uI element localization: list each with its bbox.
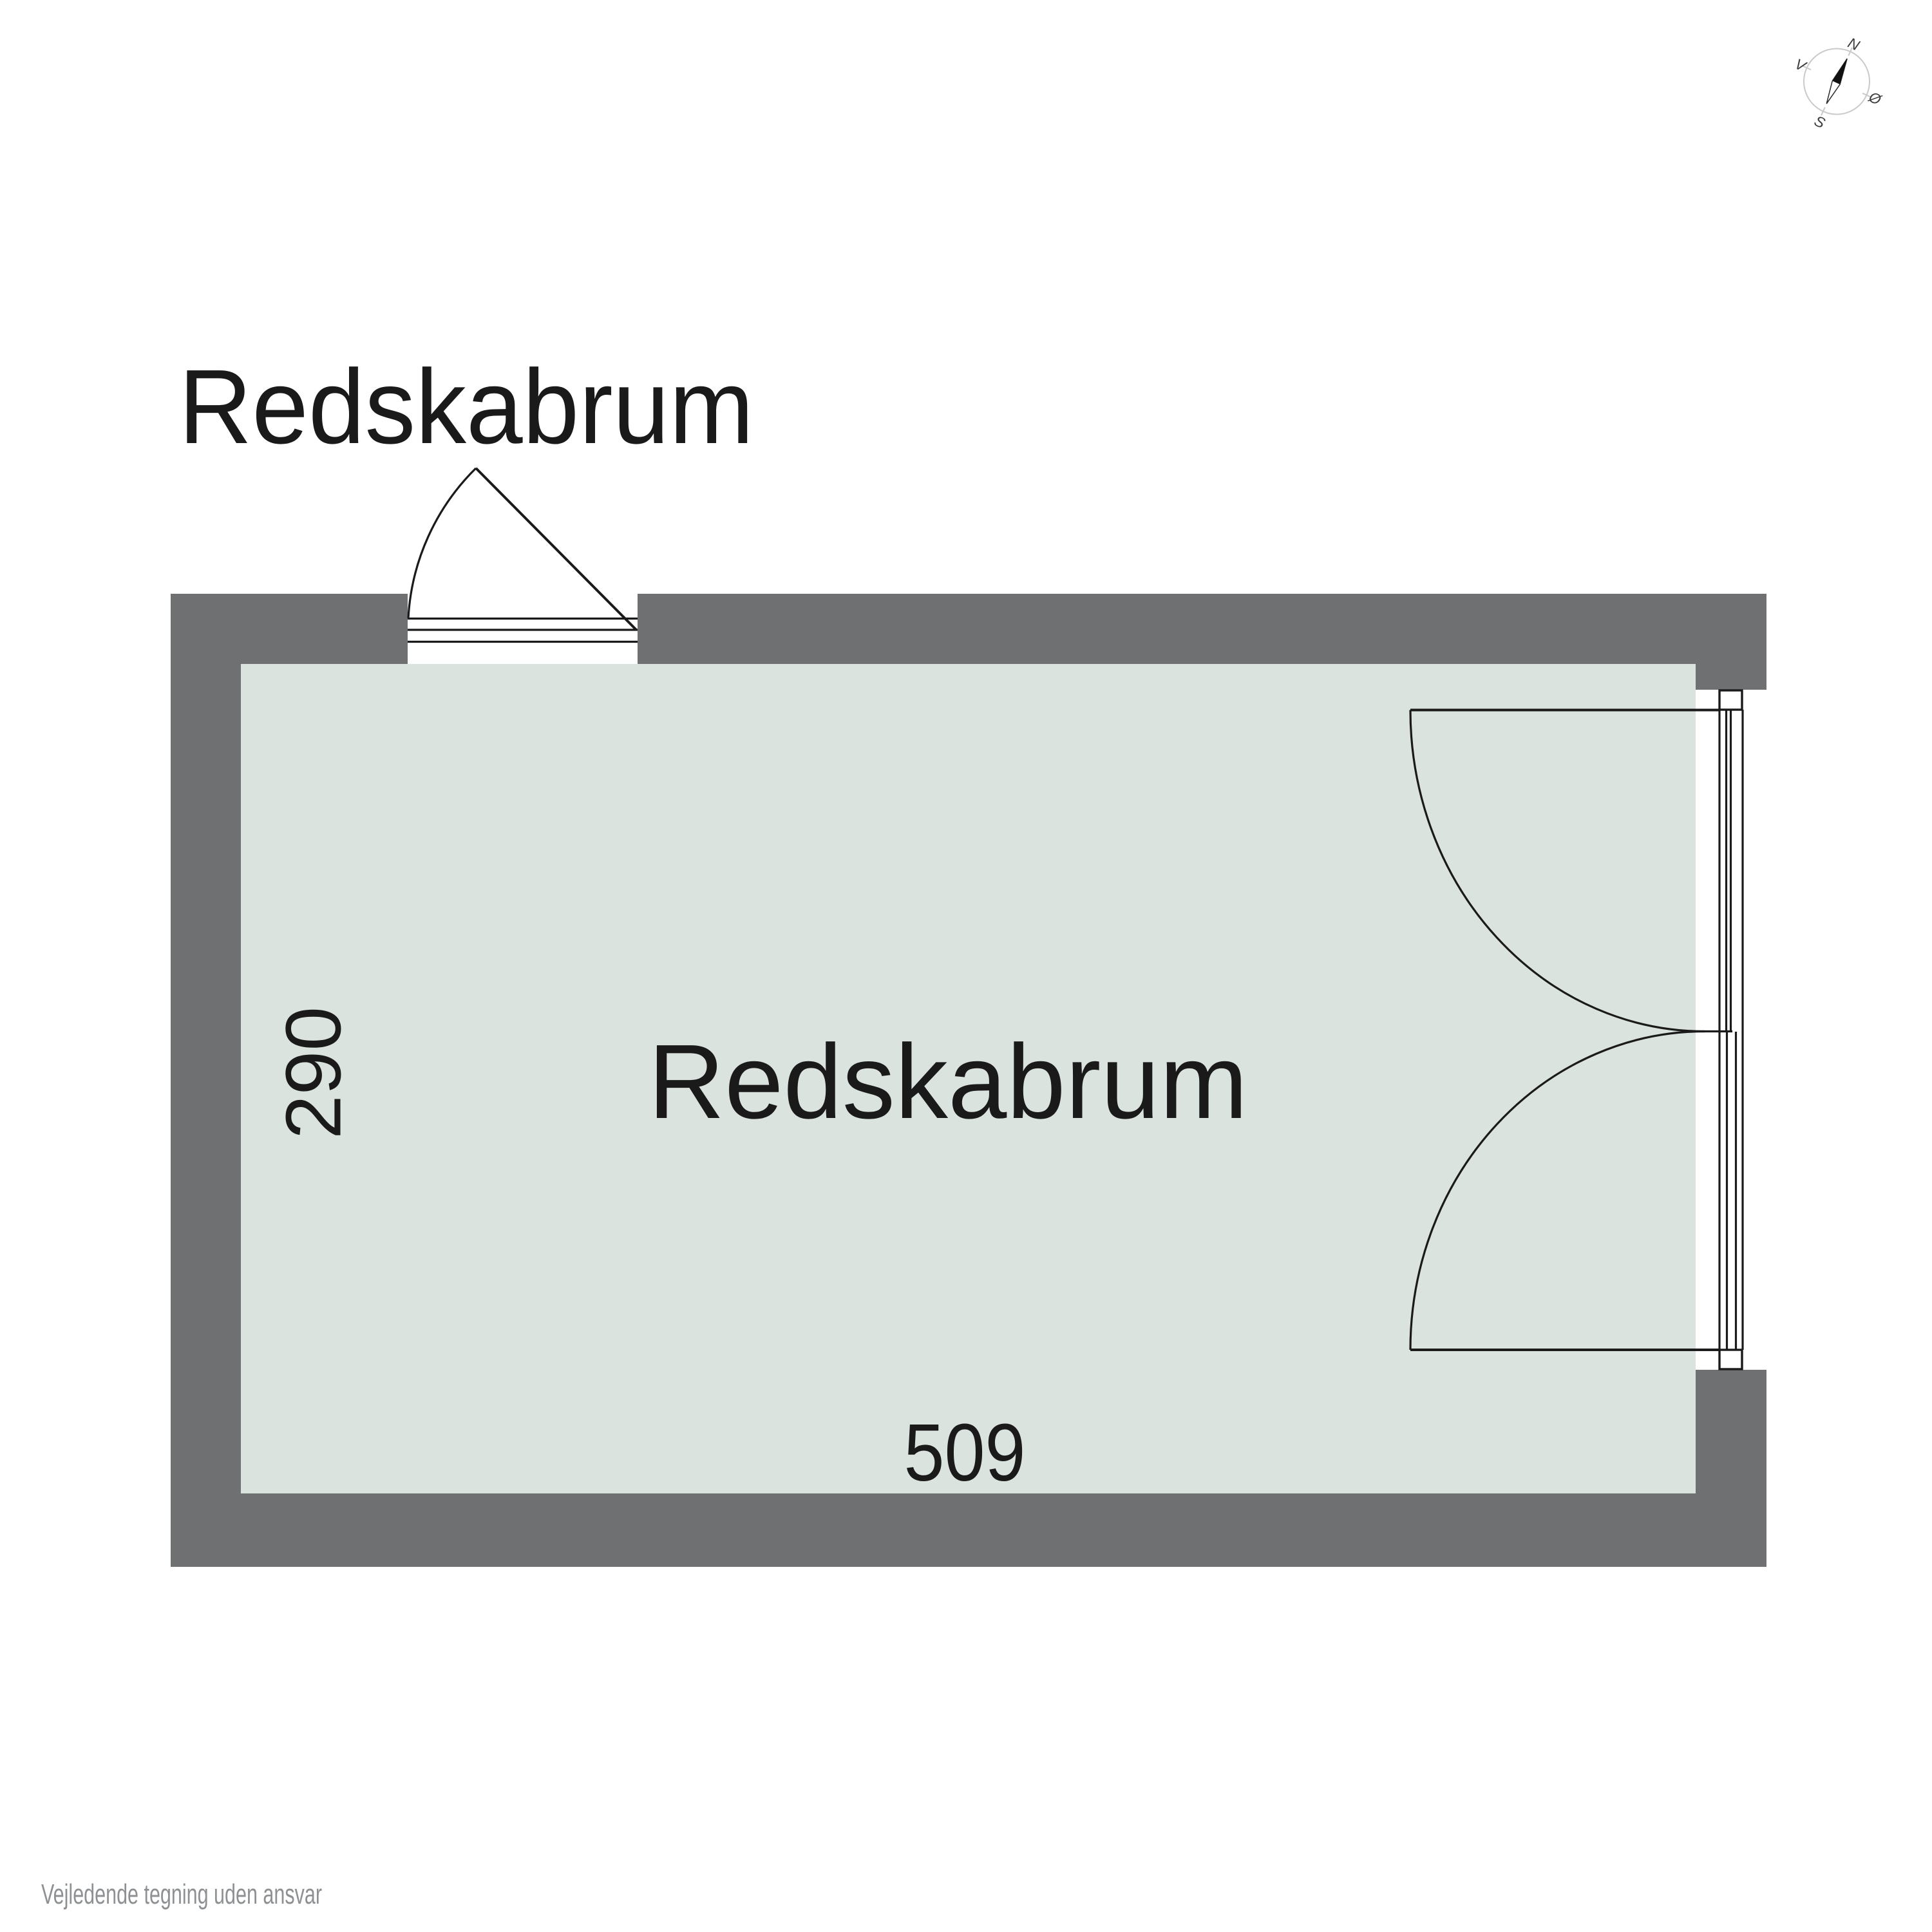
svg-text:Redskabrum: Redskabrum xyxy=(649,1023,1248,1141)
svg-text:509: 509 xyxy=(904,1407,1026,1498)
svg-text:290: 290 xyxy=(270,1007,357,1139)
svg-text:Redskabrum: Redskabrum xyxy=(179,348,754,466)
svg-text:Vejledende tegning uden ansvar: Vejledende tegning uden ansvar xyxy=(41,1879,322,1910)
